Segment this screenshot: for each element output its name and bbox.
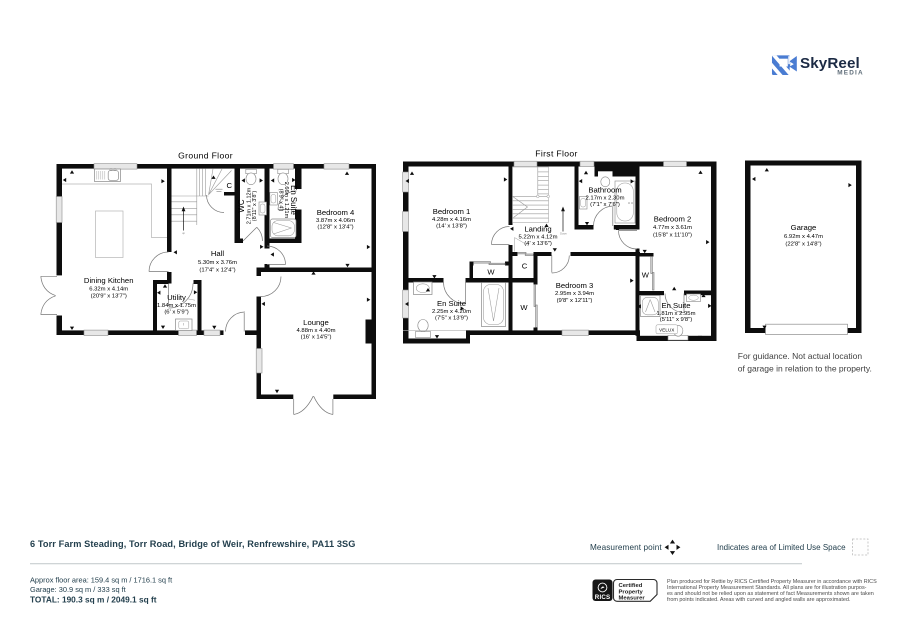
svg-text:2.95m x 3.94m: 2.95m x 3.94m: [555, 291, 594, 297]
svg-text:Measurer: Measurer: [619, 596, 646, 602]
svg-text:1.81m x 2.95m: 1.81m x 2.95m: [657, 311, 696, 317]
svg-text:Down: Down: [560, 232, 567, 236]
svg-text:RICS: RICS: [595, 594, 611, 601]
svg-text:Hall: Hall: [211, 249, 225, 258]
svg-text:4.88m x 4.40m: 4.88m x 4.40m: [297, 328, 336, 334]
svg-text:(22'8" x 14'8"): (22'8" x 14'8"): [785, 242, 821, 248]
svg-text:W: W: [487, 268, 495, 277]
svg-text:First Floor: First Floor: [535, 148, 578, 158]
svg-text:(7'1" x 7'6"): (7'1" x 7'6"): [590, 202, 620, 208]
svg-text:3.87m x 4.06m: 3.87m x 4.06m: [316, 218, 355, 224]
svg-text:Bedroom 1: Bedroom 1: [433, 207, 471, 216]
svg-text:(12'8" x 13'4"): (12'8" x 13'4"): [317, 225, 353, 231]
svg-text:Approx floor area: 159.4 sq m: Approx floor area: 159.4 sq m / 1716.1 s…: [30, 576, 172, 585]
svg-text:Ground Floor: Ground Floor: [178, 150, 233, 160]
svg-text:(8'9" x 4'): (8'9" x 4'): [278, 189, 284, 212]
svg-text:(5'11" x 9'8"): (5'11" x 9'8"): [660, 317, 693, 323]
svg-text:4.28m x 4.16m: 4.28m x 4.16m: [432, 217, 471, 223]
svg-text:C: C: [522, 262, 528, 271]
svg-text:Indicates area of Limited Use: Indicates area of Limited Use Space: [717, 543, 846, 552]
svg-text:MEDIA: MEDIA: [837, 70, 864, 77]
svg-text:Bedroom 4: Bedroom 4: [317, 208, 355, 217]
svg-text:(17'4" x 12'4"): (17'4" x 12'4"): [199, 267, 235, 273]
svg-text:For guidance. Not actual locat: For guidance. Not actual location: [738, 351, 863, 361]
svg-text:2.25m x 4.20m: 2.25m x 4.20m: [432, 309, 471, 315]
svg-text:Bathroom: Bathroom: [588, 186, 621, 195]
svg-text:6.92m x 4.47m: 6.92m x 4.47m: [784, 234, 823, 240]
svg-text:Garage: Garage: [791, 223, 817, 232]
svg-text:Dining Kitchen: Dining Kitchen: [84, 276, 134, 285]
svg-text:Lounge: Lounge: [303, 318, 329, 327]
svg-text:5.22m x 4.12m: 5.22m x 4.12m: [519, 235, 558, 241]
svg-text:(15'8" x 11'10"): (15'8" x 11'10"): [653, 232, 692, 238]
svg-text:Property: Property: [619, 589, 644, 595]
svg-text:4.77m x 3.61m: 4.77m x 3.61m: [653, 225, 692, 231]
svg-text:W: W: [642, 270, 650, 279]
svg-text:En Suite: En Suite: [661, 301, 690, 310]
svg-text:1.84m x 1.75m: 1.84m x 1.75m: [157, 303, 196, 309]
svg-text:(8'11" x 3'8"): (8'11" x 3'8"): [252, 191, 258, 222]
svg-text:TOTAL: 190.3 sq m / 2049.1 sq: TOTAL: 190.3 sq m / 2049.1 sq ft: [30, 595, 157, 605]
svg-text:(14' x 13'8"): (14' x 13'8"): [436, 224, 467, 230]
svg-text:(9'8" x 12'11"): (9'8" x 12'11"): [557, 298, 593, 304]
svg-text:C: C: [227, 181, 233, 190]
svg-text:(20'9" x 13'7"): (20'9" x 13'7"): [91, 294, 127, 300]
svg-text:Certified: Certified: [619, 583, 643, 589]
svg-text:Garage: 30.9 sq m / 333 sq ft: Garage: 30.9 sq m / 333 sq ft: [30, 585, 126, 594]
svg-text:(16' x 14'5"): (16' x 14'5"): [301, 335, 332, 341]
svg-text:2.17m x 2.30m: 2.17m x 2.30m: [586, 196, 625, 202]
svg-text:Measurement point: Measurement point: [590, 543, 662, 552]
svg-text:Bedroom 3: Bedroom 3: [556, 281, 594, 290]
svg-text:WC: WC: [237, 199, 246, 212]
svg-text:W: W: [520, 303, 528, 312]
svg-text:6.32m x 4.14m: 6.32m x 4.14m: [89, 287, 128, 293]
svg-text:Utility: Utility: [167, 293, 186, 302]
svg-text:En Suite: En Suite: [437, 299, 466, 308]
svg-text:VELUX: VELUX: [659, 328, 674, 333]
svg-text:En Suite: En Suite: [289, 185, 298, 215]
svg-text:from points indicated. Areas w: from points indicated. Areas with curved…: [667, 597, 851, 603]
svg-text:of garage in relation to the p: of garage in relation to the property.: [738, 363, 872, 373]
svg-text:(7'5" x 13'9"): (7'5" x 13'9"): [435, 316, 468, 322]
svg-text:5.30m x 3.76m: 5.30m x 3.76m: [198, 260, 237, 266]
svg-text:Bedroom 2: Bedroom 2: [654, 215, 692, 224]
svg-text:6 Torr Farm Steading, Torr Roa: 6 Torr Farm Steading, Torr Road, Bridge …: [30, 539, 356, 549]
svg-text:(6' x 5'9"): (6' x 5'9"): [164, 309, 188, 315]
